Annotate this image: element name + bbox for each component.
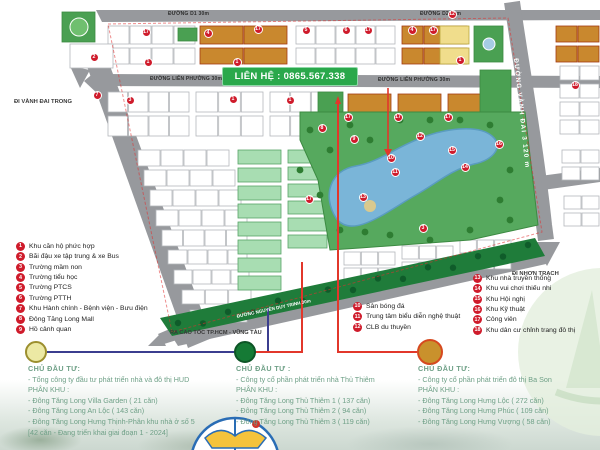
lake-island [364, 200, 376, 212]
legend-badge: 10 [353, 302, 362, 311]
legend-item-10: 10Sân bóng đá [353, 301, 460, 311]
legend-badge: 6 [16, 294, 25, 303]
investor-line: - Công ty cổ phần phát triển đô thị Ba S… [418, 375, 598, 386]
legend-label: Khu Kỹ thuật [486, 306, 525, 313]
legend-column-1: 1Khu căn hộ phức hợp2Bãi đậu xe tập trun… [16, 241, 148, 335]
legend-badge: 13 [473, 274, 482, 283]
map-marker-7: 7 [93, 91, 102, 100]
legend-item-3: 3Trường mầm non [16, 262, 148, 272]
legend-badge: 16 [473, 305, 482, 314]
legend-badge: 12 [353, 323, 362, 332]
legend-label: Khu căn hộ phức hợp [29, 243, 95, 250]
map-marker-1: 1 [229, 95, 238, 104]
phase-dot-thu-thiem [234, 341, 256, 363]
map-marker-17: 17 [394, 113, 403, 122]
legend-badge: 14 [473, 284, 482, 293]
investor-block-thu-thiem: CHỦ ĐẦU TƯ :- Công ty cổ phần phát triển… [236, 364, 421, 428]
map-marker-1: 1 [286, 96, 295, 105]
legend-column-3: 13Khu nhà truyền thống14Khu vui chơi thi… [473, 273, 575, 336]
investor-line: PHÂN KHU : [418, 385, 598, 396]
legend-label: Công viên [486, 316, 517, 323]
legend-label: CLB du thuyền [366, 324, 411, 331]
road-label-di-vanh-dai-trong: ĐI VÀNH ĐAI TRONG [14, 99, 72, 105]
legend-label: Khu nhà truyền thống [486, 275, 551, 282]
legend-badge: 9 [16, 325, 25, 334]
investor-line: - Đông Tăng Long Thủ Thiêm 2 ( 94 căn) [236, 406, 421, 417]
legend-label: Khu vui chơi thiếu nhi [486, 285, 551, 292]
investor-heading: CHỦ ĐẦU TƯ: [28, 364, 236, 375]
legend-item-16: 16Khu Kỹ thuật [473, 304, 575, 314]
legend-item-7: 7Khu Hành chính - Bệnh viện - Bưu điện [16, 304, 148, 314]
legend-label: Khu Hành chính - Bệnh viện - Bưu điện [29, 305, 148, 312]
map-marker-5: 5 [302, 26, 311, 35]
map-marker-1: 1 [456, 56, 465, 65]
legend-label: Khu Hội nghị [486, 296, 525, 303]
legend-label: Bãi đậu xe tập trung & xe Bus [29, 253, 119, 260]
legend-item-12: 12CLB du thuyền [353, 322, 460, 332]
map-marker-8: 8 [318, 124, 327, 133]
map-marker-12: 12 [416, 132, 425, 141]
legend-label: Hồ cảnh quan [29, 326, 71, 333]
legend-badge: 3 [16, 263, 25, 272]
investor-line: - Đông Tăng Long Villa Garden ( 21 căn) [28, 396, 236, 407]
map-marker-4: 4 [408, 26, 417, 35]
investor-line: - Đông Tăng Long Hưng Lộc ( 272 căn) [418, 396, 598, 407]
map-marker-2: 2 [90, 53, 99, 62]
map-marker-4: 4 [204, 29, 213, 38]
map-marker-17: 17 [364, 26, 373, 35]
investor-line: - Tổng công ty đầu tư phát triển nhà và … [28, 375, 236, 386]
legend-badge: 1 [16, 242, 25, 251]
map-marker-11: 11 [391, 168, 400, 177]
legend-item-17: 17Công viên [473, 315, 575, 325]
legend-item-13: 13Khu nhà truyền thống [473, 273, 575, 283]
legend-badge: 5 [16, 283, 25, 292]
legend-badge: 11 [353, 312, 362, 321]
investor-line: [42 căn - Đang triển khai giai đoạn 1 - … [28, 428, 236, 439]
investor-line: - Đông Tăng Long An Lộc ( 143 căn) [28, 406, 236, 417]
map-marker-16: 16 [495, 140, 504, 149]
legend-item-6: 6Trường PTTH [16, 293, 148, 303]
legend-item-4: 4Trường tiểu học [16, 272, 148, 282]
legend-item-15: 15Khu Hội nghị [473, 294, 575, 304]
map-marker-9: 9 [350, 135, 359, 144]
investor-block-ba-son: CHỦ ĐẦU TƯ:- Công ty cổ phần phát triển … [418, 364, 598, 428]
map-marker-17: 17 [142, 28, 151, 37]
map-marker-3: 3 [126, 96, 135, 105]
legend-label: Đông Tăng Long Mall [29, 316, 94, 323]
phase-dot-ba-son [417, 339, 443, 365]
legend-badge: 4 [16, 273, 25, 282]
legend-label: Trường tiểu học [29, 274, 77, 281]
legend-item-5: 5Trường PTCS [16, 283, 148, 293]
legend-label: Trường PTTH [29, 295, 71, 302]
map-marker-18: 18 [571, 81, 580, 90]
legend-badge: 2 [16, 252, 25, 261]
map-marker-17: 17 [254, 25, 263, 34]
map-marker-17: 17 [305, 195, 314, 204]
legend-label: Khu dân cư chỉnh trang đô thị [486, 327, 575, 334]
investor-line: - Đông Tăng Long Hưng Vượng ( 58 căn) [418, 417, 598, 428]
investor-line: - Công ty cổ phần phát triển nhà Thủ Thi… [236, 375, 421, 386]
legend-item-11: 11Trung tâm biểu diễn nghệ thuật [353, 311, 460, 321]
map-marker-1: 1 [233, 58, 242, 67]
map-marker-15: 15 [448, 146, 457, 155]
legend-item-18: 18Khu dân cư chỉnh trang đô thị [473, 325, 575, 335]
legend-item-9: 9Hồ cảnh quan [16, 325, 148, 335]
legend-badge: 15 [473, 295, 482, 304]
legend-label: Trung tâm biểu diễn nghệ thuật [366, 313, 460, 320]
investor-line: PHÂN KHU : [236, 385, 421, 396]
road-label-lien-phuong-left: ĐƯỜNG LIÊN PHƯỜNG 30m [150, 76, 222, 82]
map-marker-10: 10 [387, 154, 396, 163]
road-label-d1: ĐƯỜNG D1 30m [168, 11, 209, 17]
map-marker-17: 17 [444, 113, 453, 122]
map-marker-17: 17 [344, 113, 353, 122]
investor-heading: CHỦ ĐẦU TƯ: [418, 364, 598, 375]
road-label-lien-phuong-right: ĐƯỜNG LIÊN PHƯỜNG 30m [378, 77, 450, 83]
investor-line: PHÂN KHU : [28, 385, 236, 396]
legend-label: Trường PTCS [29, 284, 72, 291]
phase-dot-hud [25, 341, 47, 363]
map-marker-12: 12 [448, 10, 457, 19]
investor-line: - Đông Tăng Long Thủ Thiêm 3 ( 119 căn) [236, 417, 421, 428]
legend-item-1: 1Khu căn hộ phức hợp [16, 241, 148, 251]
legend-badge: 17 [473, 315, 482, 324]
map-marker-14: 14 [461, 163, 470, 172]
legend-item-8: 8Đông Tăng Long Mall [16, 314, 148, 324]
legend-item-2: 2Bãi đậu xe tập trung & xe Bus [16, 251, 148, 261]
legend-badge: 18 [473, 326, 482, 335]
legend-label: Sân bóng đá [366, 303, 405, 310]
investor-line: - Đông Tăng Long Hưng Thịnh-Phân khu nhà… [28, 417, 236, 428]
map-marker-13: 13 [359, 193, 368, 202]
investor-heading: CHỦ ĐẦU TƯ : [236, 364, 421, 375]
road-label-ra-cao-toc: RA CAO TỐC TP.HCM - VŨNG TÀU [170, 330, 262, 336]
map-marker-1: 1 [144, 58, 153, 67]
legend-column-2: 10Sân bóng đá11Trung tâm biểu diễn nghệ … [353, 301, 460, 332]
legend-label: Trường mầm non [29, 264, 82, 271]
investor-line: - Đông Tăng Long Thủ Thiêm 1 ( 137 căn) [236, 396, 421, 407]
map-marker-6: 6 [342, 26, 351, 35]
investor-block-hud: CHỦ ĐẦU TƯ:- Tổng công ty đầu tư phát tr… [28, 364, 236, 438]
map-marker-3: 3 [419, 224, 428, 233]
legend-badge: 7 [16, 304, 25, 313]
legend-badge: 8 [16, 315, 25, 324]
map-marker-17: 17 [429, 26, 438, 35]
investor-line: - Đông Tăng Long Hưng Phúc ( 109 căn) [418, 406, 598, 417]
contact-banner: LIÊN HỆ : 0865.567.338 [222, 67, 358, 86]
legend-item-14: 14Khu vui chơi thiếu nhi [473, 283, 575, 293]
